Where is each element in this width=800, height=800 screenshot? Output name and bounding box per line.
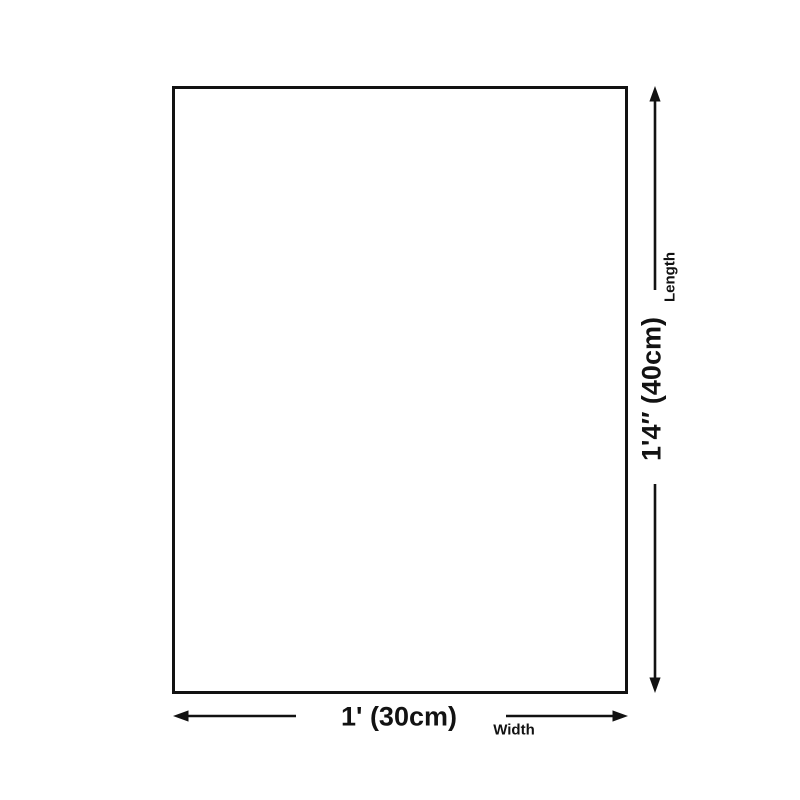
dimension-diagram: 1'4″ (40cm) Length 1' (30cm) Width xyxy=(0,0,800,800)
length-axis-label: Length xyxy=(663,252,678,302)
arrow-up-icon xyxy=(649,86,660,102)
width-axis-label: Width xyxy=(493,723,535,738)
arrow-right-icon xyxy=(613,710,629,721)
width-value-label: 1' (30cm) xyxy=(341,704,457,731)
product-outline-rect xyxy=(172,86,628,694)
length-value-label: 1'4″ (40cm) xyxy=(639,317,666,461)
arrow-down-icon xyxy=(649,678,660,694)
arrow-left-icon xyxy=(173,710,189,721)
